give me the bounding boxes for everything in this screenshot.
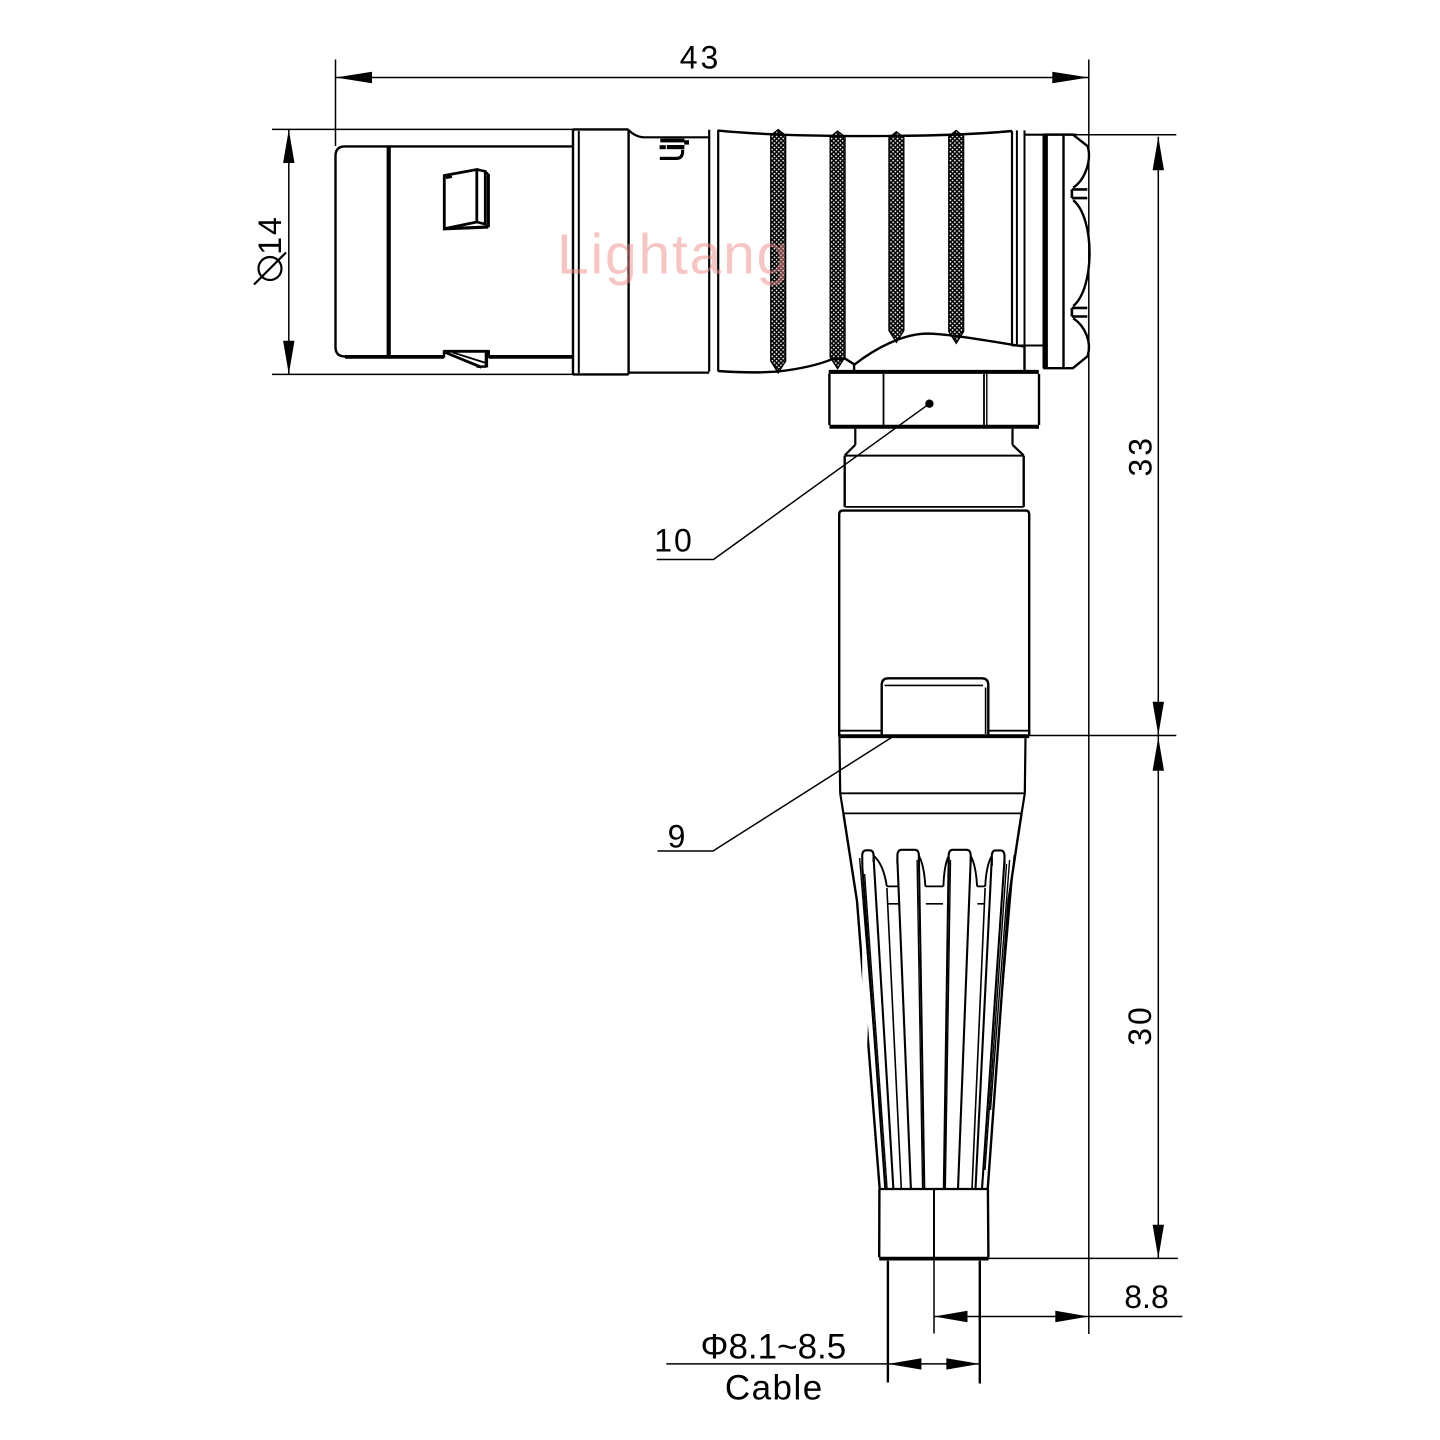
- svg-text:Φ8.1~8.5: Φ8.1~8.5: [701, 1327, 847, 1366]
- svg-text:33: 33: [1122, 435, 1158, 477]
- svg-text:Lightang: Lightang: [557, 223, 790, 287]
- svg-text:14: 14: [252, 215, 288, 255]
- svg-text:30: 30: [1122, 1004, 1158, 1046]
- svg-text:Cable: Cable: [725, 1369, 824, 1408]
- svg-text:9: 9: [668, 819, 686, 855]
- svg-text:8.8: 8.8: [1124, 1279, 1168, 1315]
- svg-text:10: 10: [654, 523, 694, 559]
- svg-text:43: 43: [680, 39, 722, 75]
